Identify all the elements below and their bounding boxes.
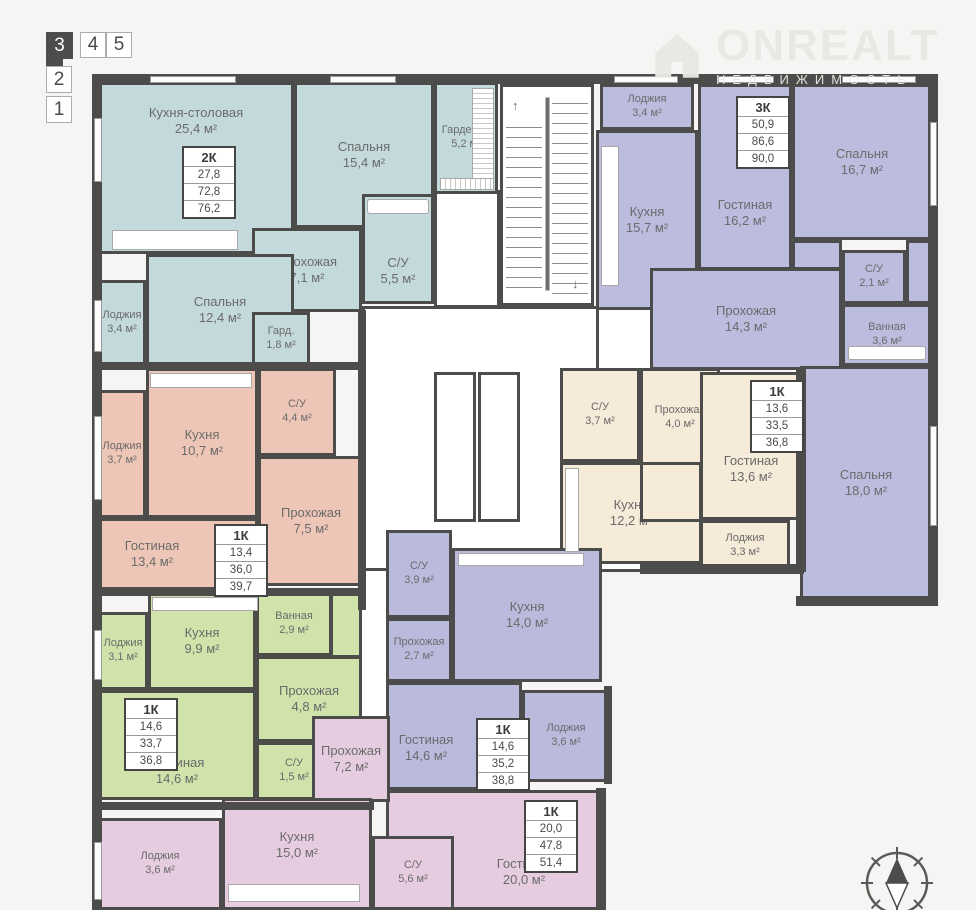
room-area: 16,2 м²: [718, 213, 773, 229]
room-area: 7,2 м²: [321, 759, 381, 775]
kitchen-counter: [565, 468, 579, 552]
room-label: Кухня: [181, 427, 223, 443]
room-loggia: Лоджия3,1 м²: [98, 612, 148, 690]
wall: [640, 564, 804, 574]
card-area-value: 90,0: [738, 150, 788, 167]
stair-flight: [552, 94, 588, 294]
room-area: 3,1 м²: [104, 651, 143, 665]
room-area: 3,4 м²: [628, 107, 667, 121]
apartment-card-1k: 1К 14,6 35,2 38,8: [476, 718, 530, 791]
elevator-shaft: [478, 372, 520, 522]
room-area: 5,6 м²: [398, 873, 428, 887]
window: [330, 76, 396, 83]
room-area: 14,6 м²: [399, 748, 454, 764]
room-label: Лоджия: [103, 440, 142, 454]
wardrobe-shelf: [440, 178, 494, 190]
window: [930, 122, 937, 206]
room-kitchen: Кухня14,0 м²: [452, 548, 602, 682]
floor-button-1[interactable]: 1: [46, 96, 72, 123]
floorplan-screen: ↑ ↓ Кухня-столовая25,4 м² Спальня15,4 м²…: [0, 0, 976, 910]
apartment-type: 1К: [478, 720, 528, 738]
card-area-value: 72,8: [184, 183, 234, 200]
room-label: С/У: [404, 560, 434, 574]
card-area-value: 14,6: [126, 718, 176, 735]
room-bath: Ванная2,9 м²: [256, 592, 332, 656]
room-label: Лоджия: [726, 532, 765, 546]
floor-button-5[interactable]: 5: [106, 32, 132, 58]
room-loggia: Лоджия3,6 м²: [522, 690, 610, 782]
room-label: Кухня: [185, 625, 220, 641]
room-area: 4,0 м²: [655, 418, 706, 432]
kitchen-counter: [152, 597, 258, 611]
room-area: 13,4 м²: [125, 554, 180, 570]
room-area: 3,4 м²: [103, 323, 142, 337]
room-area: 3,6 м²: [141, 864, 180, 878]
watermark-brand: ONREALT: [716, 24, 939, 68]
apartment-card-1k: 1К 13,6 33,5 36,8: [750, 380, 804, 453]
card-area-value: 33,5: [752, 417, 802, 434]
card-area-value: 36,8: [126, 752, 176, 769]
room-filler: [792, 240, 842, 270]
room-label: Кухня: [506, 599, 548, 615]
room-area: 3,6 м²: [547, 736, 586, 750]
bathtub: [848, 346, 926, 360]
room-loggia: Лоджия3,4 м²: [98, 280, 146, 366]
room-label: Прохожая: [321, 743, 381, 759]
card-area-value: 36,8: [752, 434, 802, 451]
room-label: Спальня: [338, 139, 390, 155]
room-label: С/У: [585, 401, 615, 415]
stair-rail: [544, 96, 551, 292]
room-area: 3,7 м²: [103, 454, 142, 468]
floor-button-4[interactable]: 4: [80, 32, 106, 58]
room-label: Кухня: [626, 204, 668, 220]
room-label: Кухня-столовая: [149, 105, 243, 121]
room-area: 2,9 м²: [275, 624, 313, 638]
room-loggia: Лоджия3,6 м²: [98, 818, 222, 910]
room-su: С/У5,6 м²: [372, 836, 454, 910]
wall: [358, 310, 366, 610]
apartment-card-2k: 2К 27,8 72,8 76,2: [182, 146, 236, 219]
room-filler: [640, 462, 702, 522]
card-area-value: 20,0: [526, 820, 576, 837]
room-label: Прохожая: [394, 636, 445, 650]
room-label: Прохожая: [279, 683, 339, 699]
room-label: Лоджия: [104, 637, 143, 651]
room-hallway: Прохожая7,5 м²: [258, 456, 364, 586]
house-logo-icon: [648, 27, 706, 85]
apartment-card-3k: 3К 50,9 86,6 90,0: [736, 96, 790, 169]
card-area-value: 38,8: [478, 772, 528, 789]
kitchen-counter: [601, 146, 619, 286]
room-hallway: Прохожая2,7 м²: [386, 618, 452, 682]
room-area: 2,7 м²: [394, 650, 445, 664]
apartment-type: 2К: [184, 148, 234, 166]
card-area-value: 76,2: [184, 200, 234, 217]
room-label: Спальня: [836, 146, 888, 162]
room-label: С/У: [381, 255, 416, 271]
room-area: 14,6 м²: [150, 771, 205, 787]
room-label: Лоджия: [628, 93, 667, 107]
room-label: Лоджия: [547, 722, 586, 736]
wall: [94, 362, 364, 370]
card-area-value: 13,4: [216, 544, 266, 561]
room-su: С/У3,7 м²: [560, 368, 640, 462]
room-label: С/У: [282, 398, 312, 412]
room-area: 7,5 м²: [281, 521, 341, 537]
room-label: С/У: [859, 263, 889, 277]
stair-flight: [506, 118, 542, 294]
wall: [596, 788, 606, 910]
apartment-type: 3К: [738, 98, 788, 116]
room-area: 13,6 м²: [724, 469, 779, 485]
apartment-card-1k: 1К 14,6 33,7 36,8: [124, 698, 178, 771]
room-area: 14,0 м²: [506, 615, 548, 631]
wall: [796, 596, 938, 606]
room-bedroom: Спальня16,7 м²: [792, 84, 932, 240]
card-area-value: 14,6: [478, 738, 528, 755]
kitchen-counter: [228, 884, 360, 902]
room-kitchen: Кухня10,7 м²: [146, 368, 258, 518]
room-label: Гостиная: [399, 732, 454, 748]
corridor-entry: [596, 306, 656, 372]
room-su: С/У2,1 м²: [842, 250, 906, 304]
stair-down-arrow-icon: ↓: [572, 276, 579, 291]
room-area: 9,9 м²: [185, 641, 220, 657]
room-bedroom: Спальня18,0 м²: [800, 366, 932, 600]
room-area: 1,8 м²: [266, 339, 296, 353]
room-label: С/У: [398, 859, 428, 873]
room-label: Прохожая: [281, 505, 341, 521]
room-area: 1,5 м²: [279, 771, 309, 785]
room-label: С/У: [279, 757, 309, 771]
room-area: 15,0 м²: [276, 845, 318, 861]
room-area: 12,4 м²: [194, 310, 246, 326]
room-label: Гостиная: [724, 453, 779, 469]
room-label: Гостиная: [718, 197, 773, 213]
room-hallway: Прохожая14,3 м²: [650, 268, 842, 370]
room-hallway: Прохожая7,2 м²: [312, 716, 390, 802]
room-area: 15,7 м²: [626, 220, 668, 236]
apartment-card-1k: 1К 13,4 36,0 39,7: [214, 524, 268, 597]
compass-icon: [852, 838, 942, 910]
room-area: 14,3 м²: [716, 319, 776, 335]
card-area-value: 39,7: [216, 578, 266, 595]
room-label: Гостиная: [125, 538, 180, 554]
card-area-value: 13,6: [752, 400, 802, 417]
room-su: С/У4,4 м²: [258, 368, 336, 456]
room-label: Спальня: [840, 467, 892, 483]
stair-landing: [434, 190, 500, 308]
card-area-value: 27,8: [184, 166, 234, 183]
kitchen-counter: [150, 373, 252, 388]
window: [94, 842, 102, 900]
floor-button-3[interactable]: 3: [46, 32, 73, 59]
room-label: Ванная: [275, 610, 313, 624]
apartment-type: 1К: [126, 700, 176, 718]
floor-button-2[interactable]: 2: [46, 66, 72, 93]
room-area: 2,1 м²: [859, 277, 889, 291]
room-area: 18,0 м²: [840, 483, 892, 499]
wardrobe-shelving: [472, 88, 494, 180]
room-label: Гард.: [266, 325, 296, 339]
room-area: 3,7 м²: [585, 415, 615, 429]
kitchen-counter: [458, 553, 584, 566]
kitchen-counter: [112, 230, 238, 250]
room-area: 4,8 м²: [279, 699, 339, 715]
watermark-subtitle: НЕДВИЖИМОСТЬ: [716, 72, 939, 87]
room-label: Лоджия: [141, 850, 180, 864]
room-loggia: Лоджия3,4 м²: [600, 84, 694, 130]
room-area: 3,3 м²: [726, 546, 765, 560]
room-label: Ванная: [868, 321, 906, 335]
card-area-value: 47,8: [526, 837, 576, 854]
elevator-shaft: [434, 372, 476, 522]
wall: [604, 686, 612, 784]
room-area: 10,7 м²: [181, 443, 223, 459]
window: [94, 118, 102, 182]
room-label: Спальня: [194, 294, 246, 310]
stair-up-arrow-icon: ↑: [512, 98, 519, 113]
room-label: Прохожая: [716, 303, 776, 319]
room-area: 4,4 м²: [282, 412, 312, 426]
room-area: 15,4 м²: [338, 155, 390, 171]
room-label: Лоджия: [103, 309, 142, 323]
room-area: 16,7 м²: [836, 162, 888, 178]
room-area: 3,9 м²: [404, 574, 434, 588]
room-su: С/У3,9 м²: [386, 530, 452, 618]
room-area: 25,4 м²: [149, 121, 243, 137]
window: [930, 426, 937, 526]
room-area: 5,5 м²: [381, 271, 416, 287]
apartment-type: 1К: [752, 382, 802, 400]
card-area-value: 51,4: [526, 854, 576, 871]
room-area: 20,0 м²: [497, 872, 552, 888]
card-area-value: 86,6: [738, 133, 788, 150]
card-area-value: 35,2: [478, 755, 528, 772]
card-area-value: 33,7: [126, 735, 176, 752]
window: [94, 300, 102, 352]
card-area-value: 50,9: [738, 116, 788, 133]
room-label: Прохожая: [655, 404, 706, 418]
apartment-type: 1К: [216, 526, 266, 544]
card-area-value: 36,0: [216, 561, 266, 578]
bathtub: [367, 199, 429, 214]
room-wardrobe-small: Гард.1,8 м²: [252, 312, 310, 366]
room-loggia: Лоджия3,7 м²: [98, 390, 146, 518]
apartment-type: 1К: [526, 802, 576, 820]
apartment-card-1k: 1К 20,0 47,8 51,4: [524, 800, 578, 873]
room-label: Кухня: [276, 829, 318, 845]
window: [94, 416, 102, 500]
wall: [94, 802, 374, 810]
window: [94, 630, 102, 680]
onrealt-watermark: ONREALT НЕДВИЖИМОСТЬ: [648, 24, 939, 87]
window: [150, 76, 236, 83]
